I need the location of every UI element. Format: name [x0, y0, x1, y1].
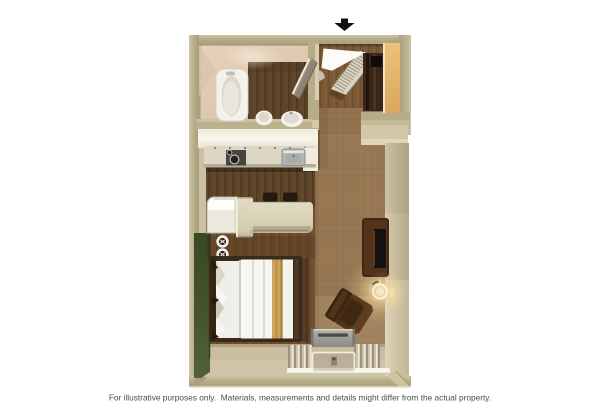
svg-text:For illustrative purposes only: For illustrative purposes only. Material… [109, 393, 491, 403]
